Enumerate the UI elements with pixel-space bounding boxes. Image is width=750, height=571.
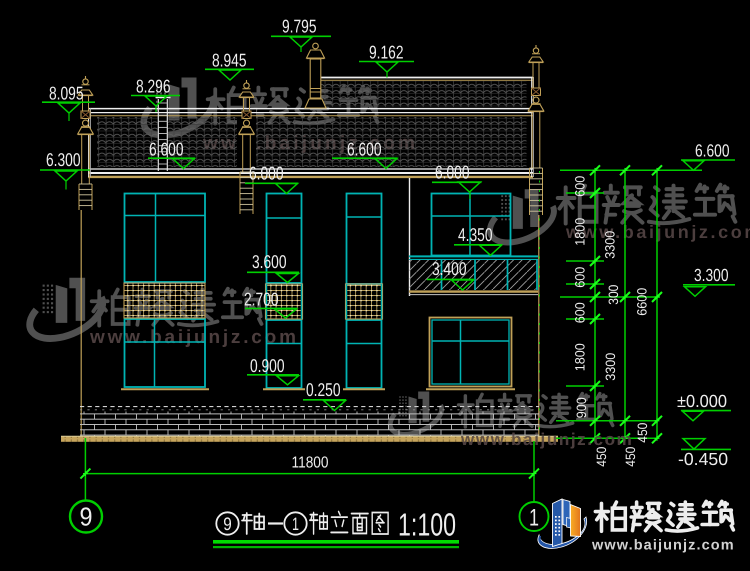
svg-text:8.095: 8.095: [49, 83, 84, 104]
svg-text:6.000: 6.000: [249, 163, 284, 184]
svg-text:6.000: 6.000: [435, 162, 470, 183]
svg-text:1800: 1800: [573, 343, 588, 371]
svg-text:www.baijunjz.com: www.baijunjz.com: [460, 430, 633, 449]
svg-text:8.945: 8.945: [212, 50, 247, 71]
svg-text:-0.450: -0.450: [678, 449, 728, 469]
svg-text:3300: 3300: [603, 231, 618, 259]
svg-text:2.700: 2.700: [244, 289, 279, 310]
svg-text:1: 1: [529, 505, 539, 532]
svg-text:450: 450: [635, 423, 650, 443]
svg-text:600: 600: [573, 302, 588, 323]
svg-text:450: 450: [594, 447, 609, 467]
svg-text:8.296: 8.296: [136, 76, 171, 97]
svg-text:600: 600: [573, 176, 588, 197]
svg-text:3300: 3300: [603, 353, 618, 381]
svg-text:6.600: 6.600: [149, 139, 184, 160]
svg-text:6.600: 6.600: [695, 141, 730, 161]
svg-text:3.600: 3.600: [252, 251, 287, 272]
svg-text:600: 600: [573, 267, 588, 288]
svg-text:1: 1: [292, 514, 299, 534]
svg-text:9: 9: [80, 502, 93, 532]
svg-text:6600: 6600: [635, 288, 650, 316]
svg-text:3.300: 3.300: [694, 265, 729, 285]
svg-text:9.162: 9.162: [369, 42, 404, 63]
svg-text:0.900: 0.900: [250, 355, 285, 376]
svg-text:900: 900: [574, 397, 589, 418]
svg-text:www.baijunjz.com: www.baijunjz.com: [591, 538, 735, 554]
svg-text:6.300: 6.300: [46, 149, 81, 170]
svg-text:1:100: 1:100: [398, 507, 456, 543]
svg-text:450: 450: [623, 447, 638, 467]
svg-text:9.795: 9.795: [282, 16, 317, 37]
svg-text:11800: 11800: [292, 455, 329, 472]
svg-text:9: 9: [223, 514, 232, 534]
svg-text:±0.000: ±0.000: [677, 391, 727, 411]
svg-text:4.350: 4.350: [458, 224, 493, 245]
svg-text:1800: 1800: [573, 218, 588, 246]
svg-text:6.600: 6.600: [347, 139, 382, 160]
svg-text:3.400: 3.400: [432, 258, 467, 279]
svg-text:0.250: 0.250: [306, 379, 341, 400]
svg-text:300: 300: [606, 285, 621, 305]
